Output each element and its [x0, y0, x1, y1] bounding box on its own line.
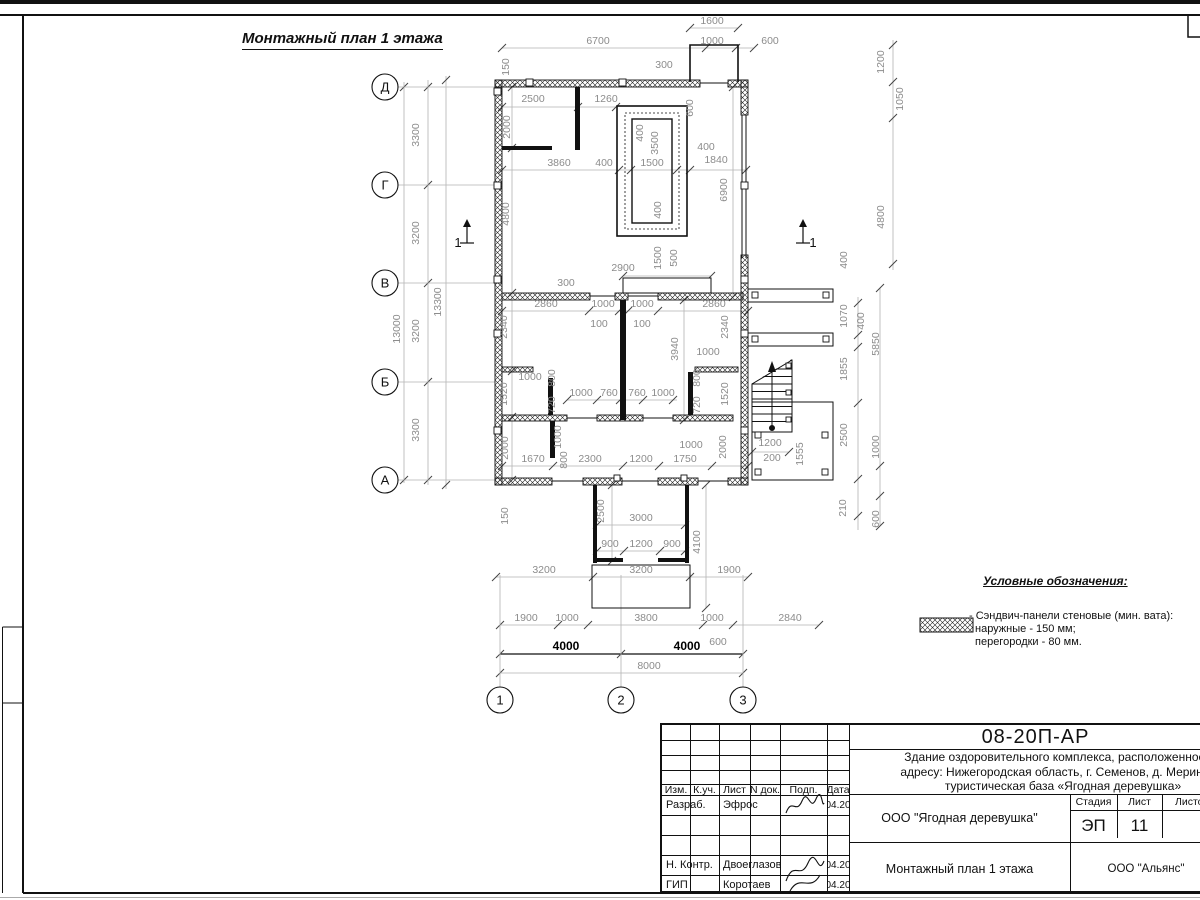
dim-label: 13000: [391, 314, 403, 343]
dim-label: 5850: [870, 332, 882, 356]
sheets-label: Листов: [1162, 794, 1200, 810]
legend-title: Условные обозначения:: [983, 574, 1200, 588]
partition-topleft-v: [575, 87, 580, 150]
plan-details: [494, 45, 973, 632]
dim-label: 1520: [498, 382, 510, 406]
dim-label: 800: [691, 369, 703, 387]
dimension-labels: 1600670010006003001502500126060020004003…: [391, 15, 906, 672]
dim-label: 2000: [717, 435, 729, 459]
row-role-0: Разраб.: [662, 795, 723, 815]
dim-label: 6700: [586, 35, 610, 47]
row-date-4: 04.20: [827, 875, 849, 895]
dim-label: 1900: [514, 612, 538, 624]
format-box: [1188, 15, 1200, 37]
dim-label: 800: [546, 369, 558, 387]
row-date-0: 04.20: [827, 795, 849, 815]
dim-label: 2340: [498, 315, 510, 339]
axis-label: Б: [381, 375, 390, 390]
description-line1: Здание оздоровительного комплекса, распо…: [853, 750, 1200, 765]
partition-center: [620, 300, 626, 420]
dim-label: 1600: [700, 15, 724, 27]
dim-label: 2500: [521, 93, 545, 105]
hdr-kuch: К.уч.: [690, 784, 719, 795]
dim-label: 1520: [719, 382, 731, 406]
porch-stub-left: [597, 558, 623, 562]
dim-label: 3500: [649, 131, 661, 155]
dim-label: 200: [763, 452, 781, 464]
signature-ncontrol: [780, 851, 828, 895]
wall-low-1: [502, 415, 567, 421]
dim-label: 1840: [704, 154, 728, 166]
row-name-4: Коротаев: [719, 875, 784, 895]
dim-label: 1000: [679, 439, 703, 451]
dim-label: 3860: [547, 157, 571, 169]
dim-label: 1000: [569, 387, 593, 399]
dim-label: 150: [500, 58, 512, 76]
chimney-outline: [690, 45, 738, 82]
company-cell: ООО "Альянс": [1070, 842, 1200, 895]
dim-label: 1260: [594, 93, 618, 105]
hdr-ndok: N док.: [750, 784, 780, 795]
legend-symbol-spacer: [905, 612, 961, 628]
dim-label: 2900: [611, 262, 635, 274]
dim-label: 2500: [595, 499, 607, 523]
top-edge-bar: [0, 0, 1200, 4]
wall-bottom-3: [658, 478, 698, 485]
porch-wall-left: [593, 485, 597, 563]
sheet-value: 11: [1117, 810, 1162, 842]
dim-label: 4800: [500, 202, 512, 226]
dim-label: 3940: [669, 337, 681, 361]
dim-label: 2860: [702, 298, 726, 310]
wall-mid-stub: [615, 293, 628, 300]
plan-title: Монтажный план 1 этажа: [242, 30, 443, 50]
dim-label: 2000: [499, 436, 511, 460]
dim-label: 1050: [894, 87, 906, 111]
dim-label: 1000: [700, 612, 724, 624]
legend-item: - Сэндвич-панели стеновые (мин. вата): н…: [969, 610, 1173, 649]
dim-label: 3800: [634, 612, 658, 624]
partition-topleft-h: [502, 146, 552, 150]
dim-label: 760: [600, 387, 618, 399]
dim-label: 100: [590, 318, 608, 330]
axis-label: 2: [617, 693, 624, 708]
wall-right-lower: [741, 255, 748, 485]
dim-label: 3200: [532, 564, 556, 576]
dim-label: 500: [668, 249, 680, 267]
dim-label: 2840: [778, 612, 802, 624]
legend-item-line1: - Сэндвич-панели стеновые (мин. вата):: [969, 610, 1173, 623]
dim-label: 1000: [518, 371, 542, 383]
stage-value: ЭП: [1070, 810, 1117, 842]
wall-bottom-4: [728, 478, 748, 485]
dim-label: 1200: [629, 538, 653, 550]
dim-label: 1000: [591, 298, 615, 310]
dim-label: 2300: [578, 453, 602, 465]
dim-label: 4800: [875, 205, 887, 229]
axis-label: А: [381, 473, 390, 488]
dim-label: 2500: [838, 423, 850, 447]
dim-label: 720: [691, 396, 703, 414]
ramp-beam-1: [748, 289, 833, 302]
doc-number: 08-20П-АР: [849, 725, 1200, 749]
description-line2: адресу: Нижегородская область, г. Семено…: [853, 765, 1200, 780]
sheet-label: Лист: [1117, 794, 1162, 810]
section-label: 1: [809, 235, 816, 250]
dim-label: 1670: [521, 453, 545, 465]
porch-wall-right: [685, 485, 689, 563]
axis-label: Г: [381, 178, 388, 193]
hdr-data: Дата: [827, 784, 849, 795]
dim-label: 400: [838, 251, 850, 269]
dim-label: 3300: [410, 123, 422, 147]
drawing-sheet: ДГВБА123: [0, 0, 1200, 900]
dim-label: 400: [855, 312, 867, 330]
dim-label: 3200: [629, 564, 653, 576]
dim-label: 2340: [719, 315, 731, 339]
dim-label: 600: [709, 636, 727, 648]
dim-label: 300: [557, 277, 575, 289]
wall-mid-2: [658, 293, 743, 300]
dim-label: 1900: [717, 564, 741, 576]
dim-label: 900: [601, 538, 619, 550]
dim-label: 600: [870, 510, 882, 528]
wall-low-3: [673, 415, 733, 421]
drawing-title-cell: Монтажный план 1 этажа: [849, 842, 1070, 895]
dim-label: 3200: [410, 319, 422, 343]
dim-label: 400: [595, 157, 613, 169]
dim-label: 1750: [673, 453, 697, 465]
project-description: Здание оздоровительного комплекса, распо…: [853, 750, 1200, 794]
dim-label: 900: [663, 538, 681, 550]
dim-label: 3200: [410, 221, 422, 245]
wall-right-upper: [741, 80, 748, 115]
dim-label: 100: [633, 318, 651, 330]
dim-label: 1500: [652, 246, 664, 270]
dim-label: 6900: [718, 178, 730, 202]
dim-label: 720: [546, 396, 558, 414]
dim-label: 1000: [700, 35, 724, 47]
org-cell: ООО "Ягодная деревушка": [849, 794, 1070, 842]
dim-label: 3300: [410, 418, 422, 442]
legend-item-line3: перегородки - 80 мм.: [975, 636, 1173, 649]
title-block: 08-20П-АР Здание оздоровительного компле…: [660, 723, 1200, 893]
row-role-3: Н. Контр.: [662, 855, 723, 875]
dim-label: 300: [655, 59, 673, 71]
dim-label: 210: [837, 499, 849, 517]
dim-label: 150: [499, 507, 511, 525]
dim-label: 400: [697, 141, 715, 153]
row-name-3: Двоеглазов: [719, 855, 784, 875]
dim-label: 760: [628, 387, 646, 399]
dim-label: 1000: [552, 425, 564, 449]
dim-label: 4000: [674, 639, 701, 653]
dim-label: 13300: [432, 287, 444, 316]
dim-label: 1855: [838, 357, 850, 381]
axis-label: 1: [496, 693, 503, 708]
wall-bottom-1: [495, 478, 552, 485]
dim-label: 1200: [758, 437, 782, 449]
section-label: 1: [454, 235, 461, 250]
axis-label: 3: [739, 693, 746, 708]
dim-label: 1200: [629, 453, 653, 465]
description-line3: туристическая база «Ягодная деревушка»: [853, 779, 1200, 794]
axis-label: В: [381, 276, 390, 291]
dim-label: 1200: [875, 50, 887, 74]
dim-label: 400: [652, 201, 664, 219]
dimension-lines: [400, 24, 897, 677]
dim-label: 600: [684, 99, 696, 117]
dim-label: 1500: [640, 157, 664, 169]
ramp-beam-2: [748, 333, 833, 346]
dim-label: 400: [634, 124, 646, 142]
stage-label: Стадия: [1070, 794, 1117, 810]
dim-label: 1000: [555, 612, 579, 624]
axis-label: Д: [381, 80, 390, 95]
dim-label: 1070: [838, 304, 850, 328]
row-name-0: Эфрос: [719, 795, 784, 815]
dim-label: 4000: [553, 639, 580, 653]
dim-label: 1000: [630, 298, 654, 310]
dim-label: 1555: [794, 442, 806, 466]
dim-label: 2860: [534, 298, 558, 310]
row-role-4: ГИП: [662, 875, 723, 895]
legend: Условные обозначения: - Сэндвич-панели с…: [905, 574, 1200, 649]
dim-label: 4100: [691, 530, 703, 554]
dim-label: 8000: [637, 660, 661, 672]
dim-label: 3000: [629, 512, 653, 524]
hdr-list: Лист: [719, 784, 750, 795]
dim-label: 800: [558, 451, 570, 469]
dim-label: 1000: [870, 435, 882, 459]
dim-label: 1000: [696, 346, 720, 358]
porch-stub-right: [658, 558, 685, 562]
hdr-izm: Изм.: [662, 784, 690, 795]
dim-label: 600: [761, 35, 779, 47]
counter-ledge: [623, 278, 711, 293]
legend-item-line2: наружные - 150 мм;: [975, 623, 1173, 636]
sheets-value: [1162, 810, 1200, 842]
dim-label: 2000: [501, 115, 513, 139]
row-date-3: 04.20: [827, 855, 849, 875]
dim-label: 1000: [651, 387, 675, 399]
signature-developer: [782, 793, 826, 819]
